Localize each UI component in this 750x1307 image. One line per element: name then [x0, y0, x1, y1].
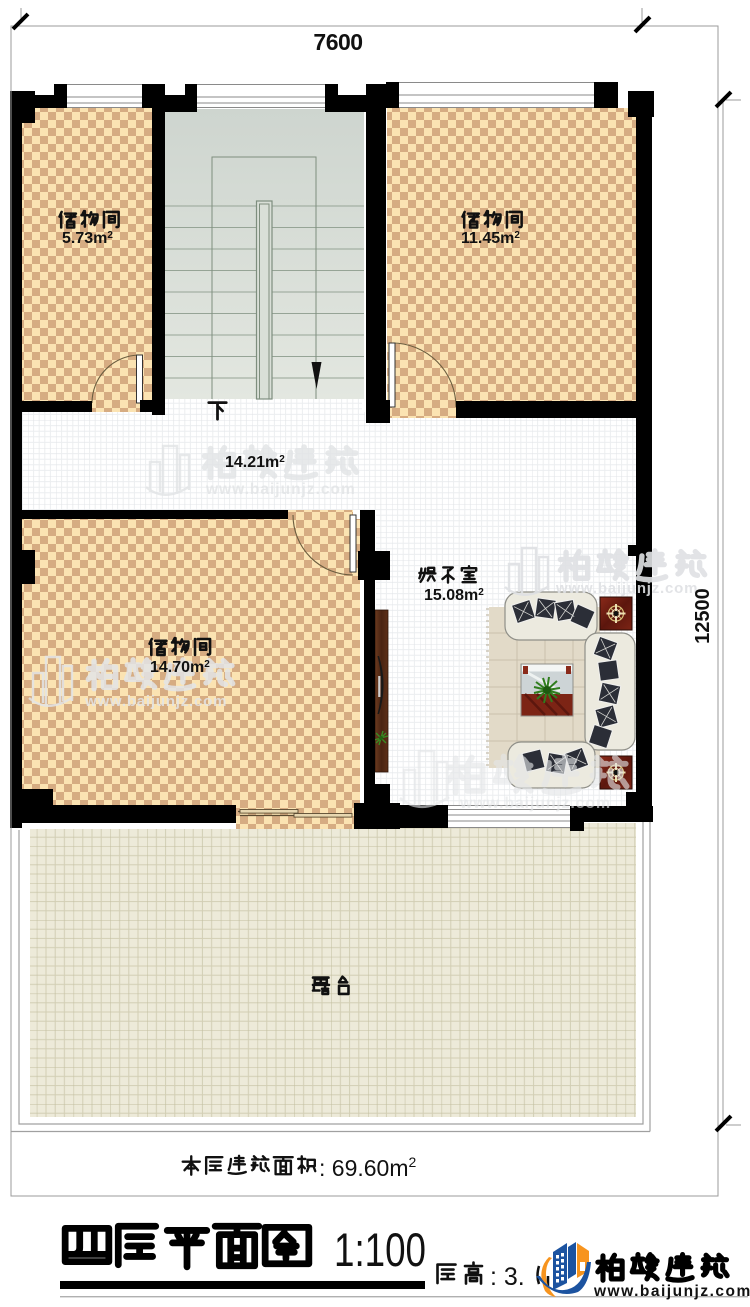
svg-text:: 3.: : 3.	[490, 1263, 525, 1291]
svg-text:12500: 12500	[692, 588, 714, 644]
svg-text:www.baijunjz.com: www.baijunjz.com	[459, 795, 611, 812]
svg-text:7600: 7600	[313, 29, 362, 55]
svg-text:14.21m2: 14.21m2	[225, 454, 285, 471]
svg-text:11.45m2: 11.45m2	[461, 230, 520, 247]
svg-text:www.baijunjz.com: www.baijunjz.com	[555, 580, 698, 597]
svg-text:www.baijunjz.com: www.baijunjz.com	[84, 693, 227, 710]
svg-text:1:100: 1:100	[334, 1223, 426, 1276]
svg-text:www.baijunjz.com: www.baijunjz.com	[593, 1283, 750, 1300]
svg-text:14.70m2: 14.70m2	[150, 659, 210, 676]
svg-text:www.baijunjz.com: www.baijunjz.com	[205, 481, 356, 498]
svg-text:15.08m2: 15.08m2	[424, 587, 484, 604]
svg-text:: 69.60m2: : 69.60m2	[319, 1154, 417, 1181]
svg-text:5.73m2: 5.73m2	[62, 230, 113, 247]
